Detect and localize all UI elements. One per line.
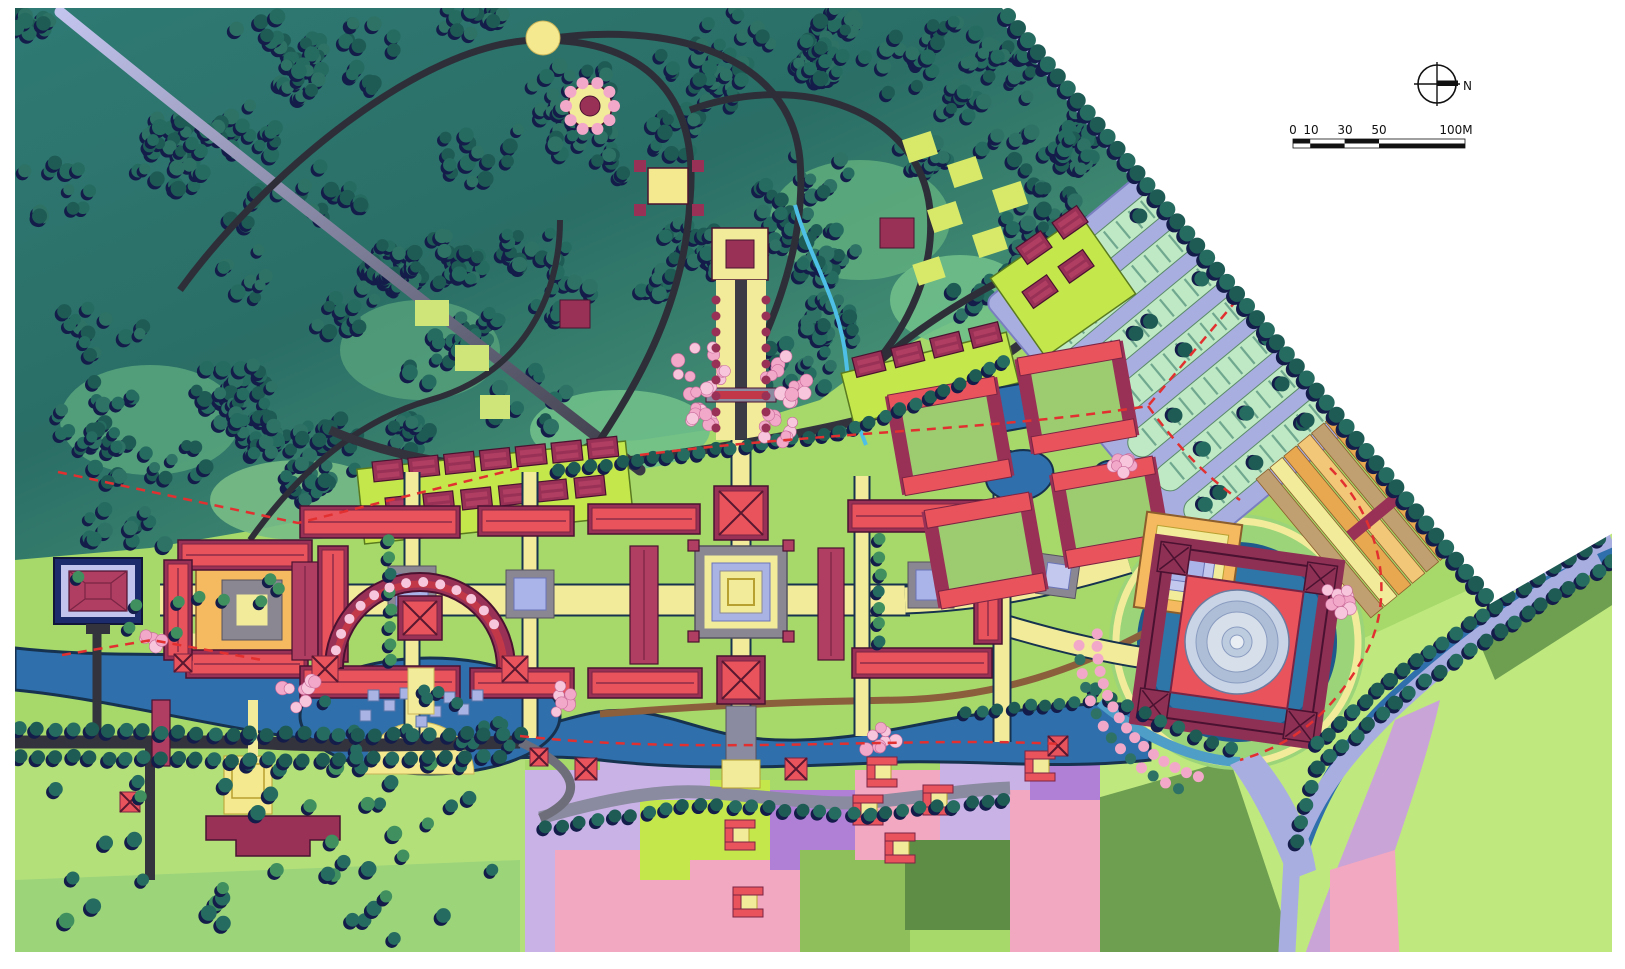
quadrangle <box>924 492 1046 609</box>
quadrangle <box>888 376 1012 495</box>
scale-bar-segments <box>1293 139 1465 148</box>
scale-tick-100: 100M <box>1439 123 1472 137</box>
south-x-pavilion <box>717 656 765 704</box>
master-plan-canvas: N 0 10 30 50 100M <box>0 0 1625 969</box>
scale-tick-0: 0 <box>1289 123 1297 137</box>
scale-bar: 0 10 30 50 100M <box>1289 123 1472 148</box>
scale-tick-10: 10 <box>1303 123 1318 137</box>
north-label: N <box>1463 79 1472 93</box>
north-pointer <box>1437 81 1458 87</box>
scale-tick-50: 50 <box>1371 123 1386 137</box>
quadrangle <box>1017 340 1136 455</box>
scale-tick-30: 30 <box>1337 123 1352 137</box>
forest-pond <box>526 21 560 55</box>
north-hall-row <box>300 500 998 538</box>
arc-pavilion <box>398 596 442 640</box>
north-x-pavilion <box>714 486 768 540</box>
